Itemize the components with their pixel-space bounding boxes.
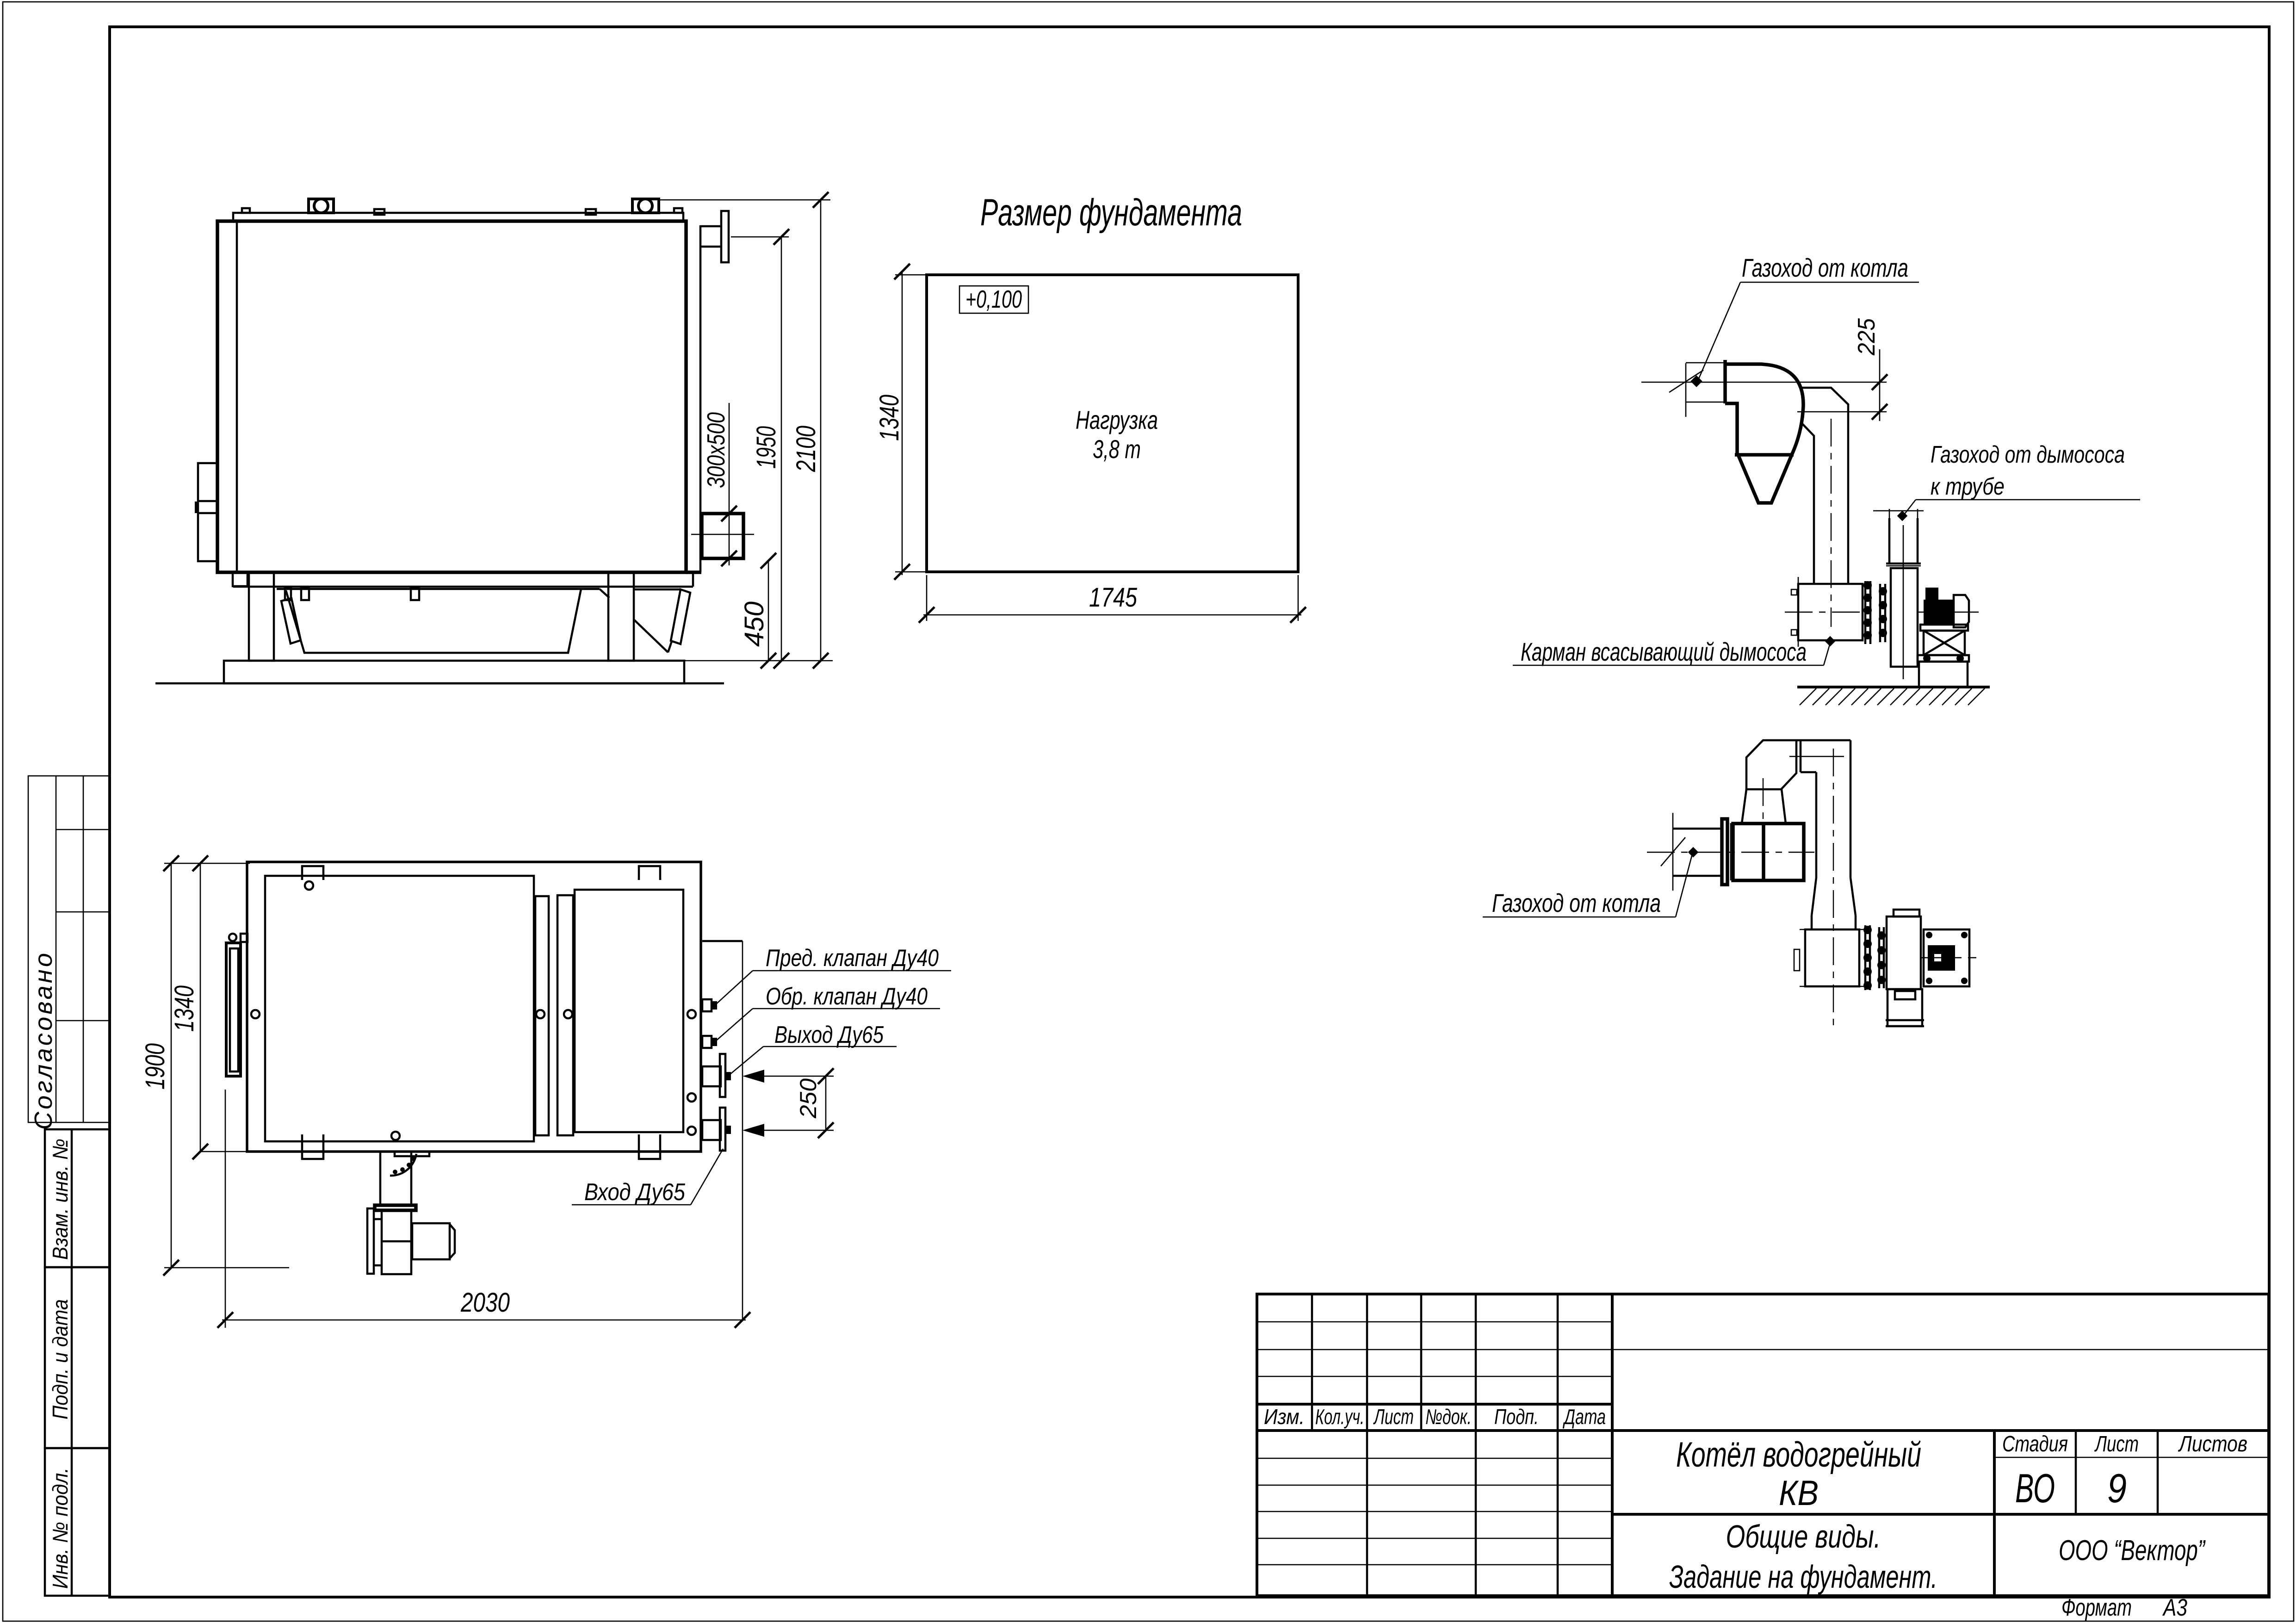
- svg-text:Выход Ду65: Выход Ду65: [774, 1022, 884, 1048]
- svg-text:Задание на фундамент.: Задание на фундамент.: [1669, 1559, 1937, 1595]
- svg-text:Формат: Формат: [2061, 1594, 2132, 1621]
- svg-text:Нагрузка: Нагрузка: [1076, 405, 1158, 434]
- svg-text:1340: 1340: [874, 395, 904, 441]
- svg-text:Лист: Лист: [1373, 1405, 1414, 1429]
- svg-text:Вход Ду65: Вход Ду65: [584, 1179, 686, 1206]
- svg-text:3,8 т: 3,8 т: [1093, 434, 1141, 464]
- svg-text:Лист: Лист: [2094, 1432, 2139, 1456]
- svg-text:250: 250: [795, 1078, 821, 1119]
- svg-text:1950: 1950: [751, 426, 781, 469]
- svg-text:Подп.: Подп.: [1494, 1405, 1539, 1429]
- svg-text:1900: 1900: [140, 1043, 170, 1090]
- svg-text:Взам. инв. №: Взам. инв. №: [48, 1139, 72, 1260]
- svg-text:Газоход от котла: Газоход от котла: [1742, 253, 1908, 282]
- svg-text:2100: 2100: [791, 426, 821, 472]
- svg-text:ООО “Вектор”: ООО “Вектор”: [2059, 1535, 2206, 1567]
- svg-text:КВ: КВ: [1779, 1474, 1819, 1513]
- svg-text:9: 9: [2107, 1465, 2127, 1511]
- svg-text:1340: 1340: [169, 985, 199, 1032]
- svg-text:Кол.уч.: Кол.уч.: [1315, 1405, 1364, 1429]
- svg-text:Карман всасывающий дымососа: Карман всасывающий дымососа: [1521, 637, 1807, 666]
- svg-text:Общие виды.: Общие виды.: [1726, 1518, 1881, 1555]
- svg-text:А3: А3: [2162, 1594, 2188, 1621]
- svg-text:к трубе: к трубе: [1931, 473, 2005, 500]
- svg-text:Дата: Дата: [1562, 1405, 1606, 1429]
- svg-text:Газоход от котла: Газоход от котла: [1492, 888, 1661, 917]
- svg-text:1745: 1745: [1089, 582, 1138, 613]
- svg-text:Инв. № подл.: Инв. № подл.: [48, 1468, 72, 1589]
- svg-text:№док.: №док.: [1425, 1405, 1472, 1429]
- svg-text:ВО: ВО: [2015, 1465, 2055, 1511]
- svg-text:Газоход от дымососа: Газоход от дымососа: [1931, 441, 2125, 468]
- svg-text:225: 225: [1853, 318, 1880, 356]
- svg-text:Согласовано: Согласовано: [30, 953, 57, 1130]
- svg-text:2030: 2030: [460, 1288, 510, 1318]
- svg-text:Подп. и дата: Подп. и дата: [48, 1299, 72, 1419]
- svg-text:Размер фундамента: Размер фундамента: [980, 192, 1242, 234]
- svg-text:Изм.: Изм.: [1264, 1405, 1305, 1429]
- svg-text:Стадия: Стадия: [2002, 1432, 2068, 1456]
- svg-text:Обр. клапан Ду40: Обр. клапан Ду40: [766, 983, 928, 1010]
- svg-text:Котёл водогрейный: Котёл водогрейный: [1676, 1435, 1921, 1474]
- svg-text:450: 450: [739, 601, 769, 647]
- svg-text:300х500: 300х500: [702, 412, 730, 488]
- svg-text:+0,100: +0,100: [965, 285, 1022, 313]
- svg-text:Листов: Листов: [2178, 1432, 2247, 1456]
- svg-text:Пред. клапан Ду40: Пред. клапан Ду40: [766, 945, 939, 972]
